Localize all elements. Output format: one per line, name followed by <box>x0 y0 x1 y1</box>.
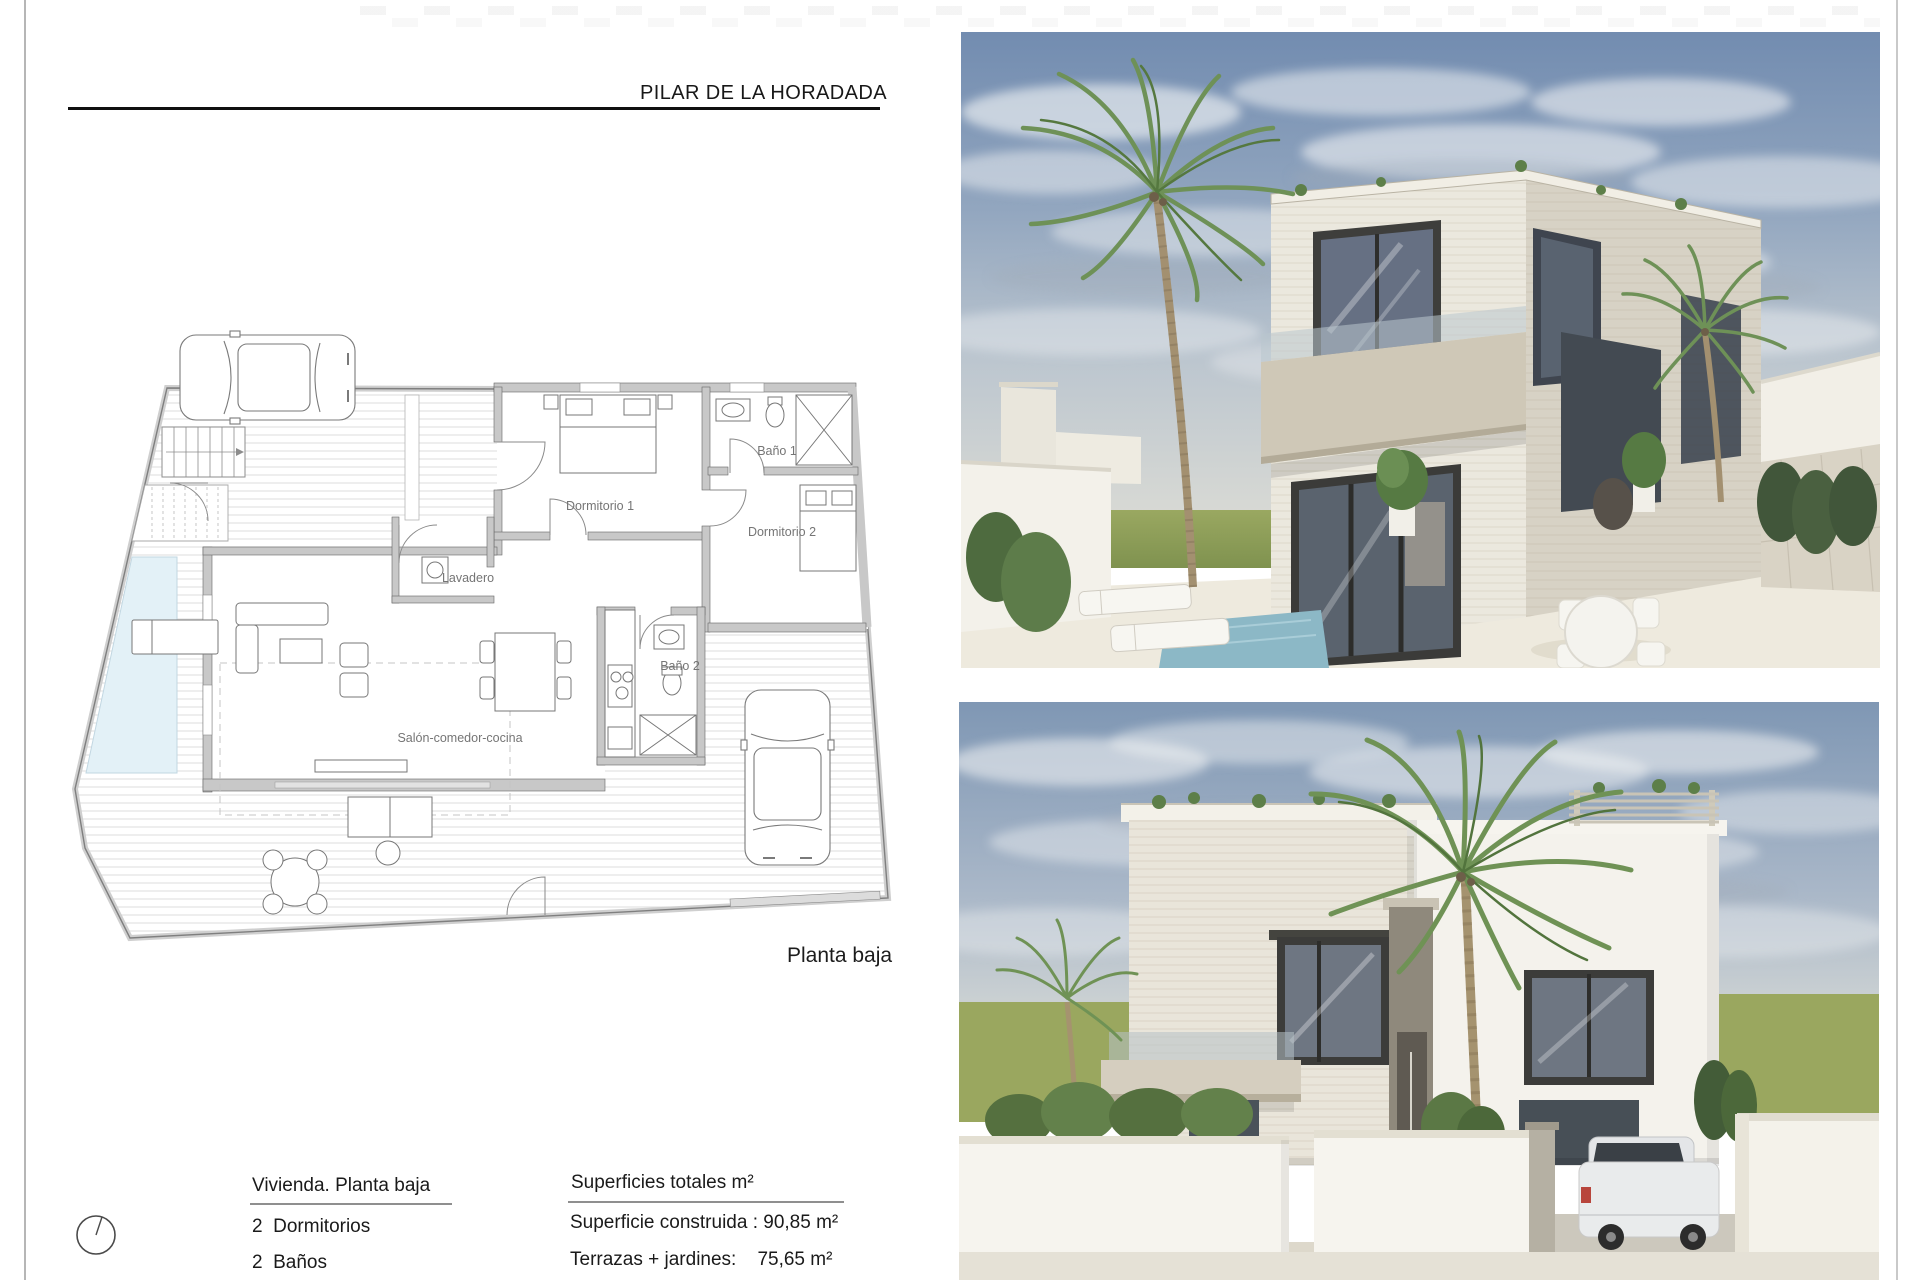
label-bano-1: Baño 1 <box>757 444 797 458</box>
sliding-door <box>275 782 490 788</box>
page-title: PILAR DE LA HORADADA <box>640 82 887 105</box>
pool <box>86 557 177 773</box>
render-perspective <box>961 32 1880 668</box>
areas-heading-underline <box>568 1201 844 1203</box>
bathrooms-count: 2 Baños <box>252 1252 327 1274</box>
terraces-area-value: Terrazas + jardines: 75,65 m² <box>570 1249 832 1271</box>
stairs <box>162 427 245 477</box>
label-bano-2: Baño 2 <box>660 659 700 673</box>
sidewalk <box>959 1252 1879 1280</box>
car-carport <box>180 331 355 424</box>
hanging-chair <box>1593 478 1633 530</box>
page-border-left <box>24 0 26 1280</box>
areas-heading: Superficies totales m² <box>571 1172 754 1194</box>
floor-plan: Dormitorio 1 Baño 1 Dormitorio 2 Lavader… <box>40 295 900 985</box>
bedrooms-count: 2 Dormitorios <box>252 1216 370 1238</box>
page-border-right <box>1896 0 1898 1280</box>
north-indicator-icon <box>69 1207 123 1261</box>
label-dormitorio-1: Dormitorio 1 <box>566 499 634 513</box>
label-lavadero: Lavadero <box>442 571 494 585</box>
label-salon: Salón-comedor-cocina <box>397 731 522 745</box>
car-driveway <box>741 690 834 865</box>
render-front-elevation <box>959 702 1879 1280</box>
top-edge-artifact <box>392 18 1880 27</box>
title-underline <box>68 107 880 110</box>
dwelling-heading-underline <box>250 1203 452 1205</box>
ramp <box>132 485 228 541</box>
top-edge-artifact <box>360 6 1880 15</box>
boundary-right <box>1757 354 1880 592</box>
dwelling-heading: Vivienda. Planta baja <box>252 1175 430 1197</box>
entry-pillar <box>405 395 419 520</box>
plan-caption: Planta baja <box>787 944 892 968</box>
label-dormitorio-2: Dormitorio 2 <box>748 525 816 539</box>
built-area-value: Superficie construida : 90,85 m² <box>570 1212 838 1234</box>
